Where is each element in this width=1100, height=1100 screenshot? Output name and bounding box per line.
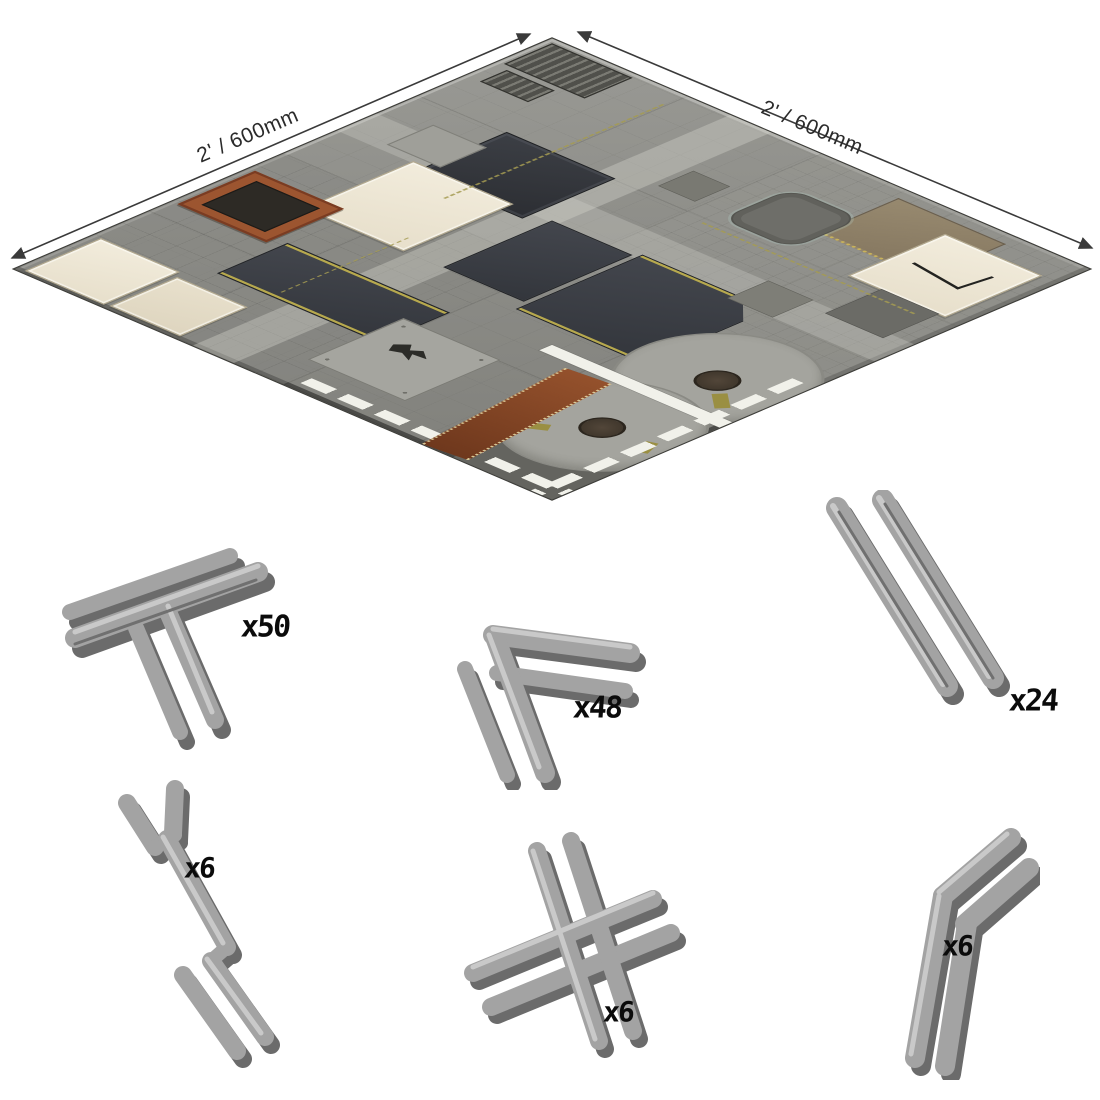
corner-clip-icon	[445, 595, 660, 790]
angle-clip-icon	[815, 800, 1040, 1080]
quantity-label-cross: x6	[602, 996, 634, 1029]
clip-cross	[435, 815, 705, 1065]
cross-clip-icon	[435, 815, 705, 1065]
straight-clip-icon	[795, 490, 1015, 710]
quantity-label-offset: x6	[183, 852, 215, 885]
quantity-label-t-junction: x50	[240, 610, 291, 645]
quantity-label-angle: x6	[941, 930, 973, 963]
clip-offset	[75, 775, 305, 1070]
clip-straight	[795, 490, 1015, 710]
eagle-emblem-icon	[382, 341, 436, 364]
offset-clip-icon	[75, 775, 305, 1070]
product-diagram: 2' / 600mm 2' / 600mm	[0, 0, 1100, 1100]
quantity-label-corner: x48	[572, 691, 623, 726]
dimension-arrows	[0, 0, 1100, 300]
clip-angle	[815, 800, 1040, 1080]
landing-pad-center	[568, 413, 636, 442]
landing-pad-center	[684, 366, 752, 395]
clip-corner	[445, 595, 660, 790]
dimension-arrow-left	[12, 34, 530, 258]
quantity-label-straight: x24	[1008, 684, 1059, 719]
clip-t-junction	[60, 540, 280, 750]
t-junction-clip-icon	[60, 540, 280, 750]
